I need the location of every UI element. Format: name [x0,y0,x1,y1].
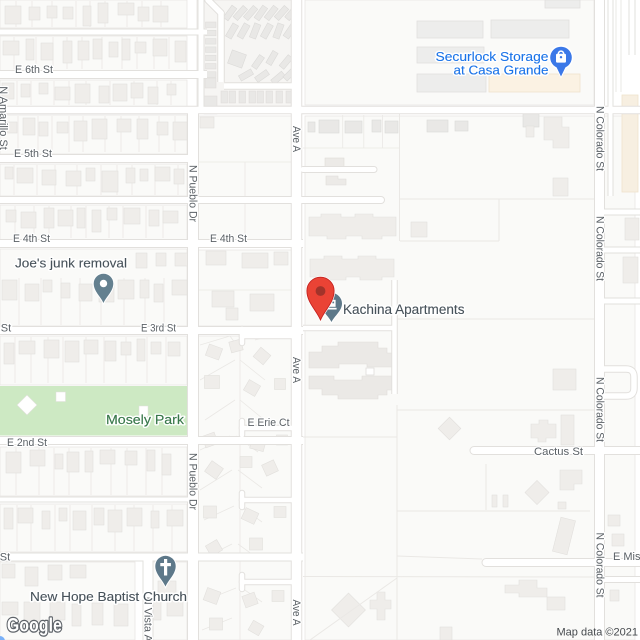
svg-text:E Erie Ct: E Erie Ct [248,417,290,429]
svg-text:N Colorado St: N Colorado St [594,533,606,598]
svg-text:N Pueblo Dr: N Pueblo Dr [187,453,199,510]
svg-text:E 5th St: E 5th St [14,148,52,160]
svg-text:Joe's junk removal: Joe's junk removal [15,256,127,271]
svg-text:E 4th St: E 4th St [210,233,247,245]
svg-text:Ave A: Ave A [290,357,302,384]
svg-text:N Colorado St: N Colorado St [594,216,606,281]
svg-text:Map data ©2021: Map data ©2021 [557,627,639,639]
svg-text:St: St [1,323,11,335]
svg-text:N Amarillo St: N Amarillo St [0,86,9,150]
svg-text:N Pueblo Dr: N Pueblo Dr [187,165,199,222]
svg-text:E 6th St: E 6th St [15,64,53,76]
svg-text:E 4th St: E 4th St [13,233,50,245]
svg-text:Mosely Park: Mosely Park [106,412,185,427]
svg-text:Kachina Apartments: Kachina Apartments [343,302,465,317]
svg-text:N Colorado St: N Colorado St [594,377,606,442]
svg-text:New Hope Baptist Church: New Hope Baptist Church [30,589,187,604]
svg-text:N Colorado St: N Colorado St [594,106,606,171]
svg-text:E 2nd St: E 2nd St [7,437,47,449]
svg-text:Google: Google [7,616,62,637]
svg-text:St: St [0,552,10,564]
svg-text:Cactus St: Cactus St [534,446,583,458]
svg-text:E Mission St: E Mission St [613,551,640,563]
svg-text:Ave A: Ave A [290,126,302,153]
svg-text:at Casa Grande: at Casa Grande [454,63,549,78]
svg-text:Ave A: Ave A [290,600,302,627]
svg-text:E 3rd St: E 3rd St [141,323,176,335]
